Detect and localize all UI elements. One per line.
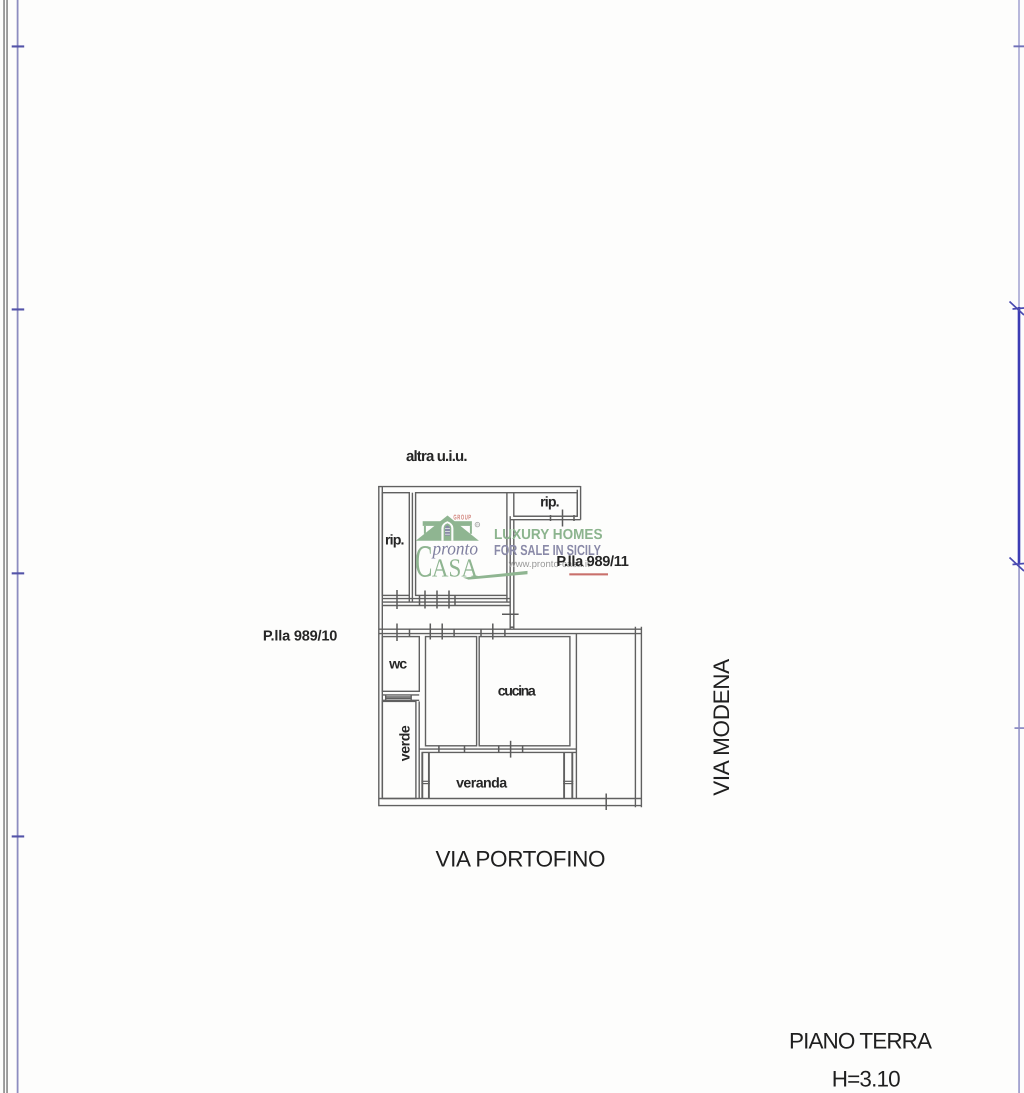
svg-text:wc: wc <box>388 656 407 672</box>
svg-text:VIA PORTOFINO: VIA PORTOFINO <box>436 847 606 872</box>
svg-text:GROUP: GROUP <box>453 514 471 521</box>
svg-text:P.lla 989/10: P.lla 989/10 <box>263 629 338 645</box>
svg-text:rip.: rip. <box>540 494 560 510</box>
svg-text:verde: verde <box>397 725 413 761</box>
svg-text:PIANO TERRA: PIANO TERRA <box>789 1029 932 1054</box>
svg-text:H=3.10: H=3.10 <box>832 1067 901 1092</box>
svg-text:LUXURY HOMES: LUXURY HOMES <box>494 527 603 543</box>
svg-text:cucina: cucina <box>498 684 536 700</box>
svg-text:altra u.i.u.: altra u.i.u. <box>406 448 468 465</box>
svg-text:P.lla 989/11: P.lla 989/11 <box>556 554 629 570</box>
svg-text:VIA MODENA: VIA MODENA <box>709 659 734 796</box>
svg-text:C: C <box>415 535 433 586</box>
svg-text:veranda: veranda <box>456 776 507 792</box>
svg-text:rip.: rip. <box>385 533 405 549</box>
svg-text:R: R <box>476 523 479 527</box>
